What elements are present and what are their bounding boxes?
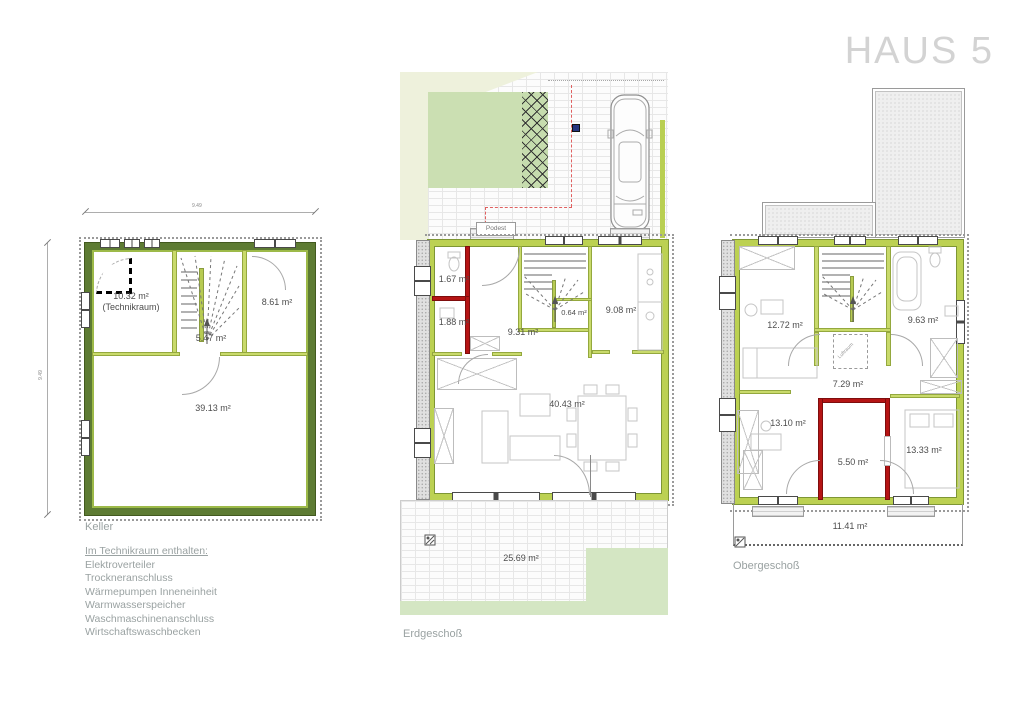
- notes-title: Im Technikraum enthalten:: [85, 545, 217, 559]
- dimension-line-left: [47, 243, 48, 515]
- room-area-label: 7.29 m²: [808, 379, 888, 390]
- drain-icon: [424, 534, 436, 546]
- room-area-label: 40.43 m²: [527, 399, 607, 410]
- room-area-label: 1.67 m²: [414, 274, 494, 285]
- wardrobe-symbol: [739, 246, 795, 270]
- note-item: Wärmepumpen Inneneinheit: [85, 586, 217, 600]
- room-area-label: 25.69 m²: [481, 553, 561, 564]
- dimension-value-width: 9.49: [192, 203, 202, 209]
- window: [81, 292, 90, 328]
- room-area-label: 39.13 m²: [173, 403, 253, 414]
- plan-name-obergeschoss: Obergeschoß: [733, 560, 800, 572]
- marker-icon: [572, 124, 580, 132]
- lawn: [400, 601, 668, 615]
- flat-roof-area: [872, 88, 965, 238]
- wall-segment: [92, 352, 180, 356]
- room-area-label: 5.50 m²: [813, 457, 893, 468]
- room-area-label: 1.88 m²: [414, 317, 494, 328]
- sheet-title: HAUS 5: [845, 30, 994, 73]
- room-area-label: 13.10 m²: [748, 418, 828, 429]
- dimension-tick: [44, 511, 51, 518]
- wardrobe-symbol: [470, 336, 500, 351]
- plan-name-erdgeschoss: Erdgeschoß: [403, 628, 462, 640]
- room-area-label: 12.72 m²: [745, 320, 825, 331]
- window: [81, 420, 90, 456]
- window: [834, 236, 866, 245]
- wardrobe-symbol: [743, 450, 763, 490]
- room-area-label: 9.63 m²: [883, 315, 963, 326]
- note-item: Warmwasserspeicher: [85, 599, 217, 613]
- note-item: Elektroverteiler: [85, 559, 217, 573]
- room-area-label: 8.61 m²: [237, 297, 317, 308]
- floorplan-sheet: { "title": "HAUS 5", "colors": { "wall_d…: [0, 0, 1024, 724]
- parking-boundary-dashed: [571, 85, 572, 207]
- door-leaf: [590, 455, 591, 497]
- parking-boundary-dashed: [485, 207, 572, 208]
- window: [898, 236, 938, 245]
- dimension-tick: [312, 208, 319, 215]
- wardrobe-symbol: [930, 338, 958, 378]
- window: [124, 239, 140, 248]
- window: [598, 236, 642, 245]
- room-area-label: 10.32 m² (Technikraum): [91, 291, 171, 313]
- wardrobe-symbol: [920, 380, 962, 394]
- window: [144, 239, 160, 248]
- garden-bed: [428, 92, 522, 188]
- wardrobe-symbol: [434, 408, 454, 464]
- plan-name-keller: Keller: [85, 521, 113, 533]
- plot-boundary-dotted: [548, 80, 664, 81]
- room-area-label: 13.33 m²: [884, 445, 964, 456]
- note-item: Waschmaschinenanschluss: [85, 613, 217, 627]
- room-area-label: 9.08 m²: [581, 305, 661, 316]
- note-item: Wirtschaftswaschbecken: [85, 626, 217, 640]
- flat-roof-area: [762, 202, 876, 238]
- car-icon: [606, 92, 654, 234]
- window: [719, 398, 736, 432]
- room-area-label: 5.47 m²: [171, 333, 251, 344]
- garden-strip: [400, 72, 428, 240]
- window: [414, 428, 431, 458]
- dimension-value-height: 9.49: [38, 370, 44, 380]
- hedge-hatch: [522, 92, 548, 188]
- window: [758, 236, 798, 245]
- technikraum-notes: Im Technikraum enthalten: Elektroverteil…: [85, 545, 217, 640]
- room-area-label: 11.41 m²: [810, 521, 890, 532]
- note-item: Trockneranschluss: [85, 572, 217, 586]
- room-area-label: 9.31 m²: [483, 327, 563, 338]
- dimension-line-top: [85, 212, 315, 213]
- hedge-strip: [660, 120, 665, 238]
- window: [100, 239, 120, 248]
- window: [254, 239, 296, 248]
- window: [719, 276, 736, 310]
- window: [545, 236, 583, 245]
- drain-icon: [734, 536, 746, 548]
